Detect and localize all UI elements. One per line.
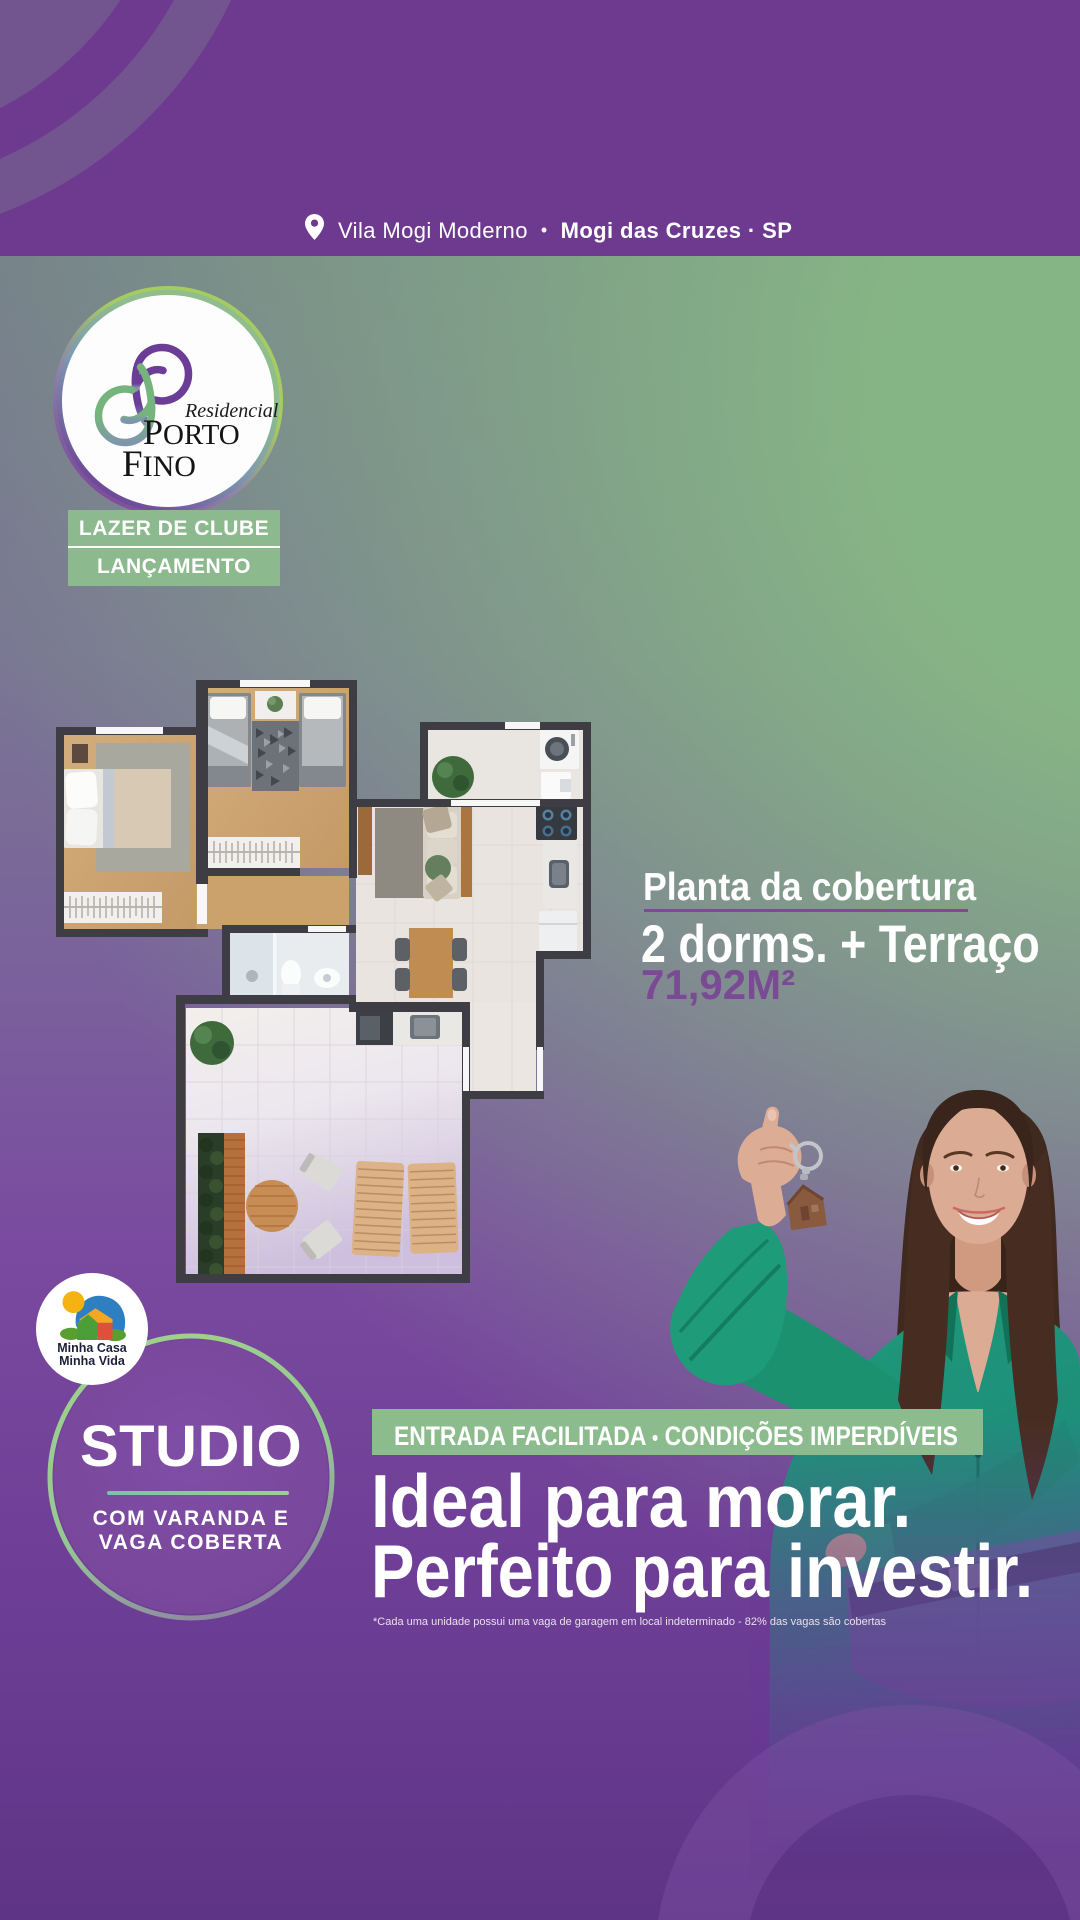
svg-text:Minha Casa: Minha Casa [57,1341,128,1355]
svg-text:FINO: FINO [122,444,196,485]
svg-text:Minha Vida: Minha Vida [59,1354,126,1368]
